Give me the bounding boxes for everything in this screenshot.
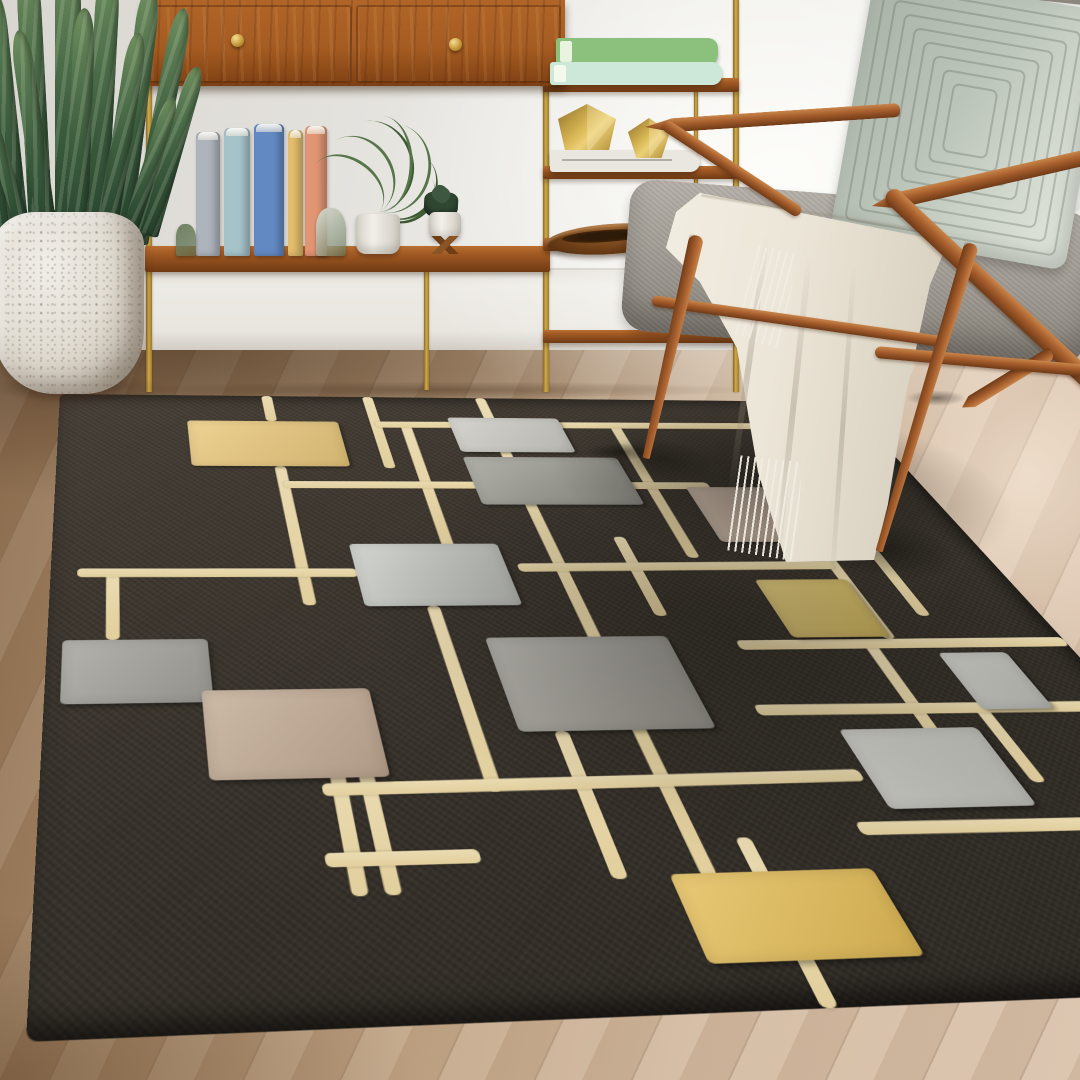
blanket-fringe	[723, 455, 805, 566]
living-room-photo	[0, 0, 1080, 1080]
armchair	[0, 0, 1080, 1080]
